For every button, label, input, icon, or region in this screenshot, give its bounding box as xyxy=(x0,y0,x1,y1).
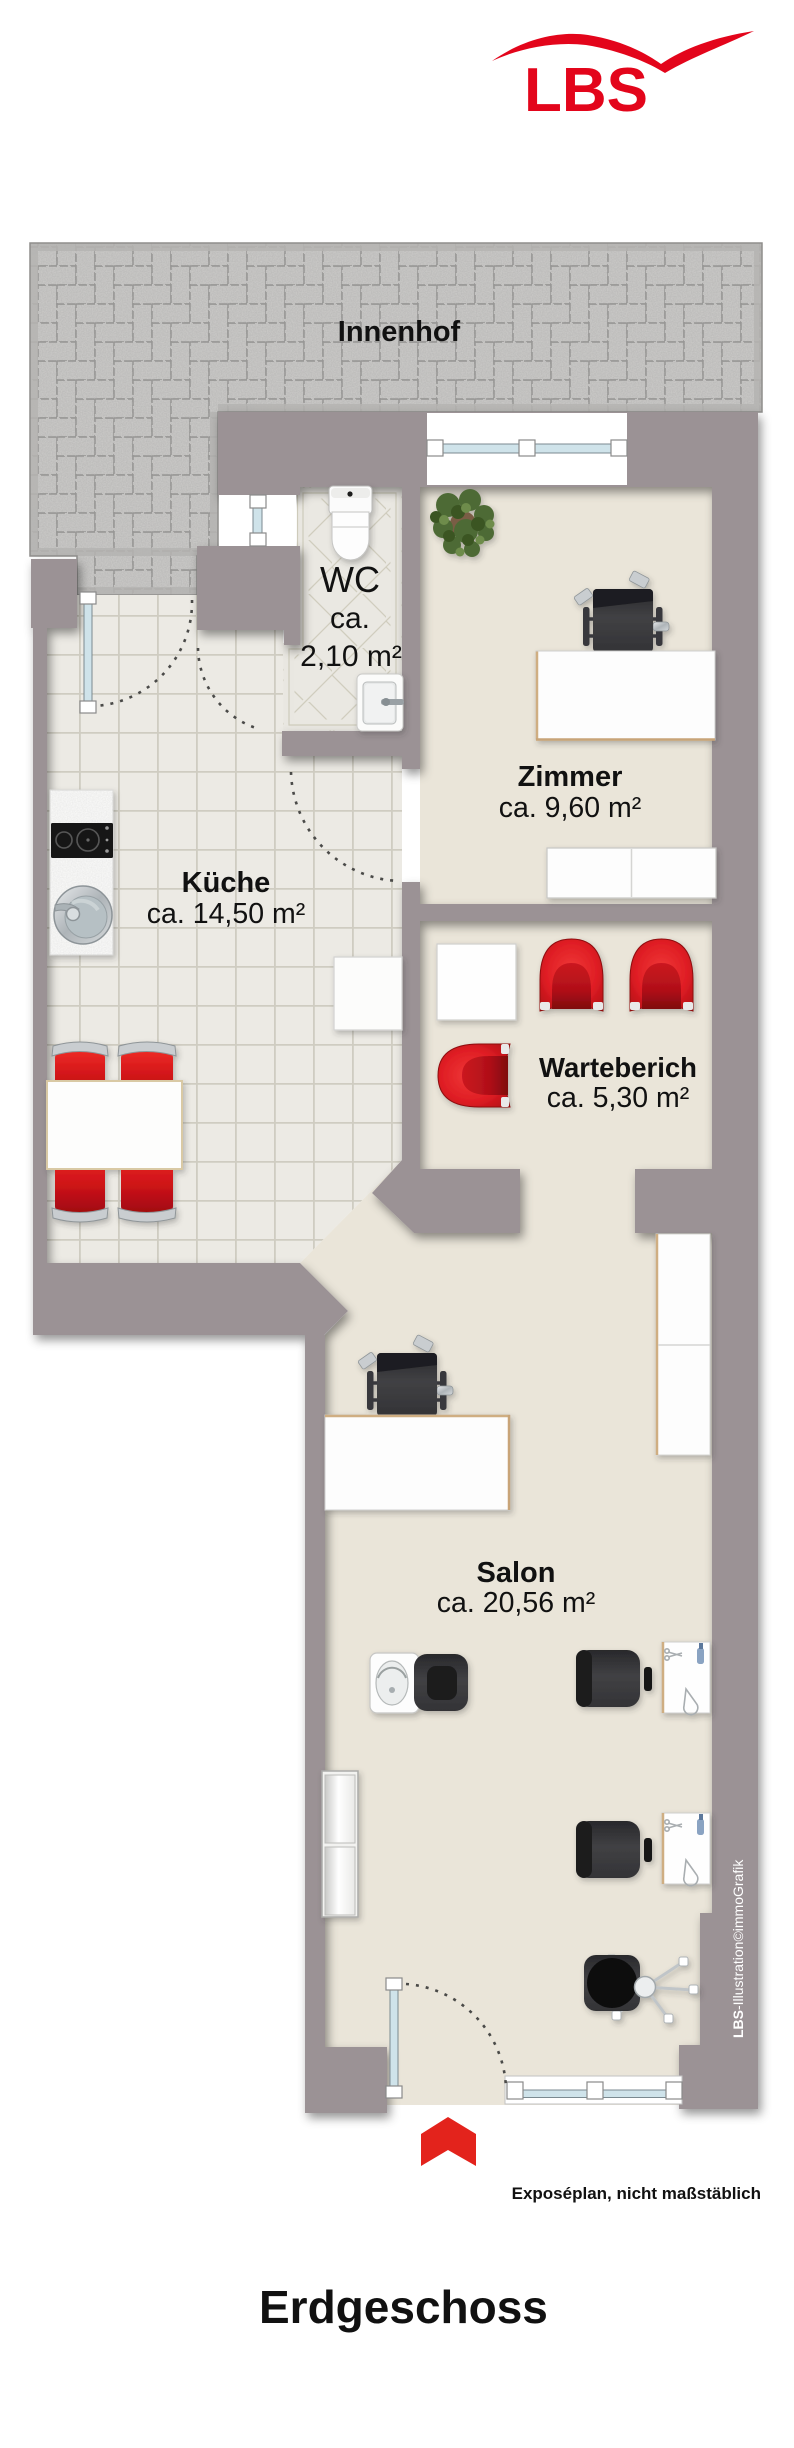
svg-text:ca.: ca. xyxy=(330,602,370,635)
svg-text:Zimmer: Zimmer xyxy=(518,761,623,793)
svg-text:ca. 20,56 m²: ca. 20,56 m² xyxy=(437,1587,595,1619)
svg-text:ca. 9,60 m²: ca. 9,60 m² xyxy=(499,792,642,824)
svg-text:Exposéplan, nicht maßstäblich: Exposéplan, nicht maßstäblich xyxy=(512,2184,761,2203)
svg-text:Salon: Salon xyxy=(477,1557,556,1589)
svg-text:Innenhof: Innenhof xyxy=(338,316,461,348)
svg-text:LBS: LBS xyxy=(524,56,648,125)
svg-text:ca. 14,50 m²: ca. 14,50 m² xyxy=(147,898,305,930)
svg-text:ca. 5,30 m²: ca. 5,30 m² xyxy=(547,1082,690,1114)
svg-text:LBS-Illustration©immoGrafik: LBS-Illustration©immoGrafik xyxy=(730,1859,746,2038)
svg-text:2,10 m²: 2,10 m² xyxy=(300,640,402,673)
svg-text:WC: WC xyxy=(320,559,380,600)
svg-text:Warteberich: Warteberich xyxy=(539,1052,697,1083)
svg-text:Erdgeschoss: Erdgeschoss xyxy=(259,2281,548,2333)
svg-text:Küche: Küche xyxy=(182,867,271,899)
